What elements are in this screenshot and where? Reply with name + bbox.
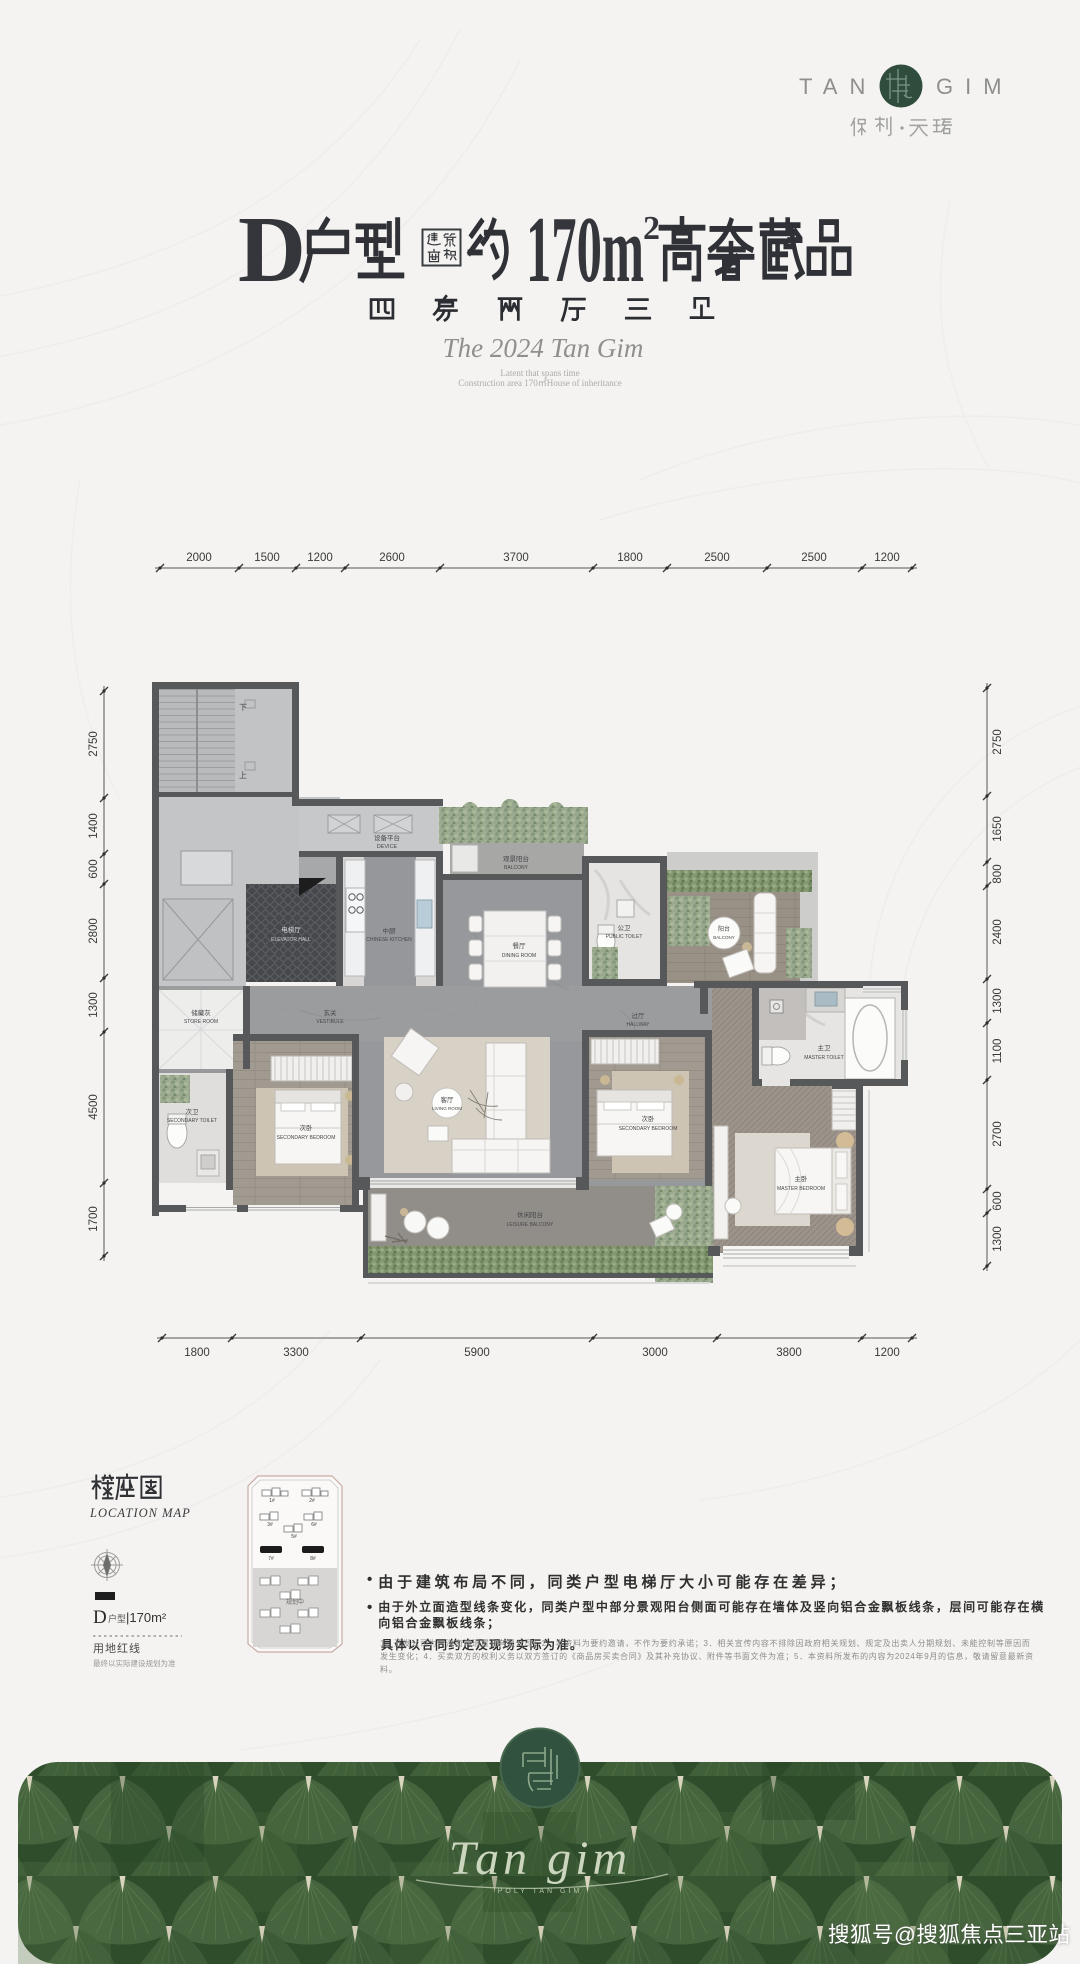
svg-text:MASTER TOILET: MASTER TOILET	[804, 1055, 844, 1061]
svg-text:MASTER BEDROOM: MASTER BEDROOM	[777, 1186, 825, 1192]
svg-text:主卫: 主卫	[818, 1043, 832, 1052]
svg-text:BALCONY: BALCONY	[504, 865, 529, 871]
svg-text:2500: 2500	[704, 552, 730, 564]
svg-text:1500: 1500	[254, 552, 280, 564]
svg-text:800: 800	[992, 864, 1004, 883]
svg-text:7#: 7#	[268, 1556, 274, 1562]
svg-text:次卧: 次卧	[642, 1114, 656, 1123]
svg-text:8#: 8#	[310, 1556, 316, 1562]
svg-text:BALCONY: BALCONY	[713, 935, 735, 940]
svg-text:过厅: 过厅	[632, 1011, 646, 1020]
svg-text:3700: 3700	[503, 552, 529, 564]
svg-text:储藏灰: 储藏灰	[191, 1008, 211, 1017]
svg-text:设备平台: 设备平台	[374, 833, 400, 842]
svg-text:主卧: 主卧	[795, 1174, 809, 1183]
svg-text:600: 600	[88, 859, 100, 878]
svg-text:1300: 1300	[992, 988, 1004, 1014]
svg-text:休闲阳台: 休闲阳台	[517, 1210, 543, 1219]
svg-text:餐厅: 餐厅	[513, 941, 527, 950]
svg-text:POLY TAN GIM: POLY TAN GIM	[498, 1888, 583, 1895]
svg-text:2750: 2750	[88, 731, 100, 757]
svg-text:用地红线: 用地红线	[93, 1641, 141, 1655]
svg-text:3#: 3#	[267, 1522, 273, 1528]
svg-text:4500: 4500	[88, 1094, 100, 1120]
svg-text:1800: 1800	[617, 552, 643, 564]
svg-text:最终以实际建设规划为准: 最终以实际建设规划为准	[93, 1658, 176, 1668]
svg-text:1200: 1200	[874, 552, 900, 564]
svg-text:户型: 户型	[108, 1613, 126, 1624]
svg-text:中厨: 中厨	[383, 926, 397, 935]
svg-text:5900: 5900	[464, 1347, 490, 1359]
svg-text:LIVING ROOM: LIVING ROOM	[432, 1106, 462, 1111]
svg-text:DINING ROOM: DINING ROOM	[502, 953, 536, 959]
svg-text:D: D	[93, 1607, 107, 1628]
svg-text:PUBLIC TOILET: PUBLIC TOILET	[606, 934, 643, 940]
svg-text:3800: 3800	[776, 1347, 802, 1359]
svg-text:1#: 1#	[269, 1498, 275, 1504]
svg-text:Tan gim: Tan gim	[449, 1832, 631, 1885]
svg-text:1650: 1650	[992, 816, 1004, 842]
svg-text:SECONDARY BEDROOM: SECONDARY BEDROOM	[277, 1135, 336, 1141]
svg-text:3300: 3300	[283, 1347, 309, 1359]
svg-text:3000: 3000	[642, 1347, 668, 1359]
svg-text:1700: 1700	[88, 1206, 100, 1232]
svg-text:下: 下	[239, 703, 247, 712]
svg-text:CHINESE KITCHEN: CHINESE KITCHEN	[366, 937, 412, 943]
svg-text:上: 上	[239, 771, 247, 780]
svg-text:2500: 2500	[801, 552, 827, 564]
svg-text:ELEVATOR HALL: ELEVATOR HALL	[271, 937, 311, 943]
svg-text:2800: 2800	[88, 918, 100, 944]
svg-text:|170m²: |170m²	[126, 1610, 167, 1625]
svg-text:STORE ROOM: STORE ROOM	[184, 1019, 218, 1025]
svg-text:1300: 1300	[992, 1226, 1004, 1252]
svg-text:客厅: 客厅	[441, 1095, 455, 1104]
svg-text:次卫: 次卫	[186, 1107, 200, 1116]
svg-text:电梯厅: 电梯厅	[281, 925, 301, 934]
svg-text:HALLWAY: HALLWAY	[627, 1022, 651, 1028]
svg-text:600: 600	[992, 1191, 1004, 1210]
svg-text:2400: 2400	[992, 919, 1004, 945]
svg-text:1300: 1300	[88, 992, 100, 1018]
svg-text:LOCATION MAP: LOCATION MAP	[89, 1506, 191, 1520]
svg-text:1200: 1200	[874, 1347, 900, 1359]
svg-text:VESTIBULE: VESTIBULE	[316, 1019, 344, 1025]
svg-text:2600: 2600	[379, 552, 405, 564]
svg-text:次卧: 次卧	[300, 1123, 314, 1132]
svg-text:1100: 1100	[992, 1039, 1004, 1064]
svg-text:DEVICE: DEVICE	[377, 844, 398, 850]
svg-text:SECONDARY BEDROOM: SECONDARY BEDROOM	[619, 1126, 678, 1132]
svg-text:1400: 1400	[88, 813, 100, 839]
svg-text:2#: 2#	[309, 1498, 315, 1504]
svg-text:公卫: 公卫	[618, 924, 632, 932]
svg-text:2750: 2750	[992, 729, 1004, 755]
svg-text:1200: 1200	[307, 552, 333, 564]
svg-text:2000: 2000	[186, 552, 212, 564]
svg-text:1800: 1800	[184, 1347, 210, 1359]
svg-text:6#: 6#	[311, 1522, 317, 1528]
svg-text:阳台: 阳台	[718, 925, 730, 933]
svg-text:2700: 2700	[992, 1121, 1004, 1147]
svg-text:观景阳台: 观景阳台	[503, 854, 529, 863]
svg-text:SECONDARY TOILET: SECONDARY TOILET	[167, 1118, 217, 1124]
svg-text:规划中: 规划中	[286, 1598, 304, 1606]
svg-text:LEISURE BALCONY: LEISURE BALCONY	[507, 1222, 554, 1228]
svg-text:玄关: 玄关	[324, 1008, 338, 1017]
svg-text:5#: 5#	[291, 1534, 297, 1540]
